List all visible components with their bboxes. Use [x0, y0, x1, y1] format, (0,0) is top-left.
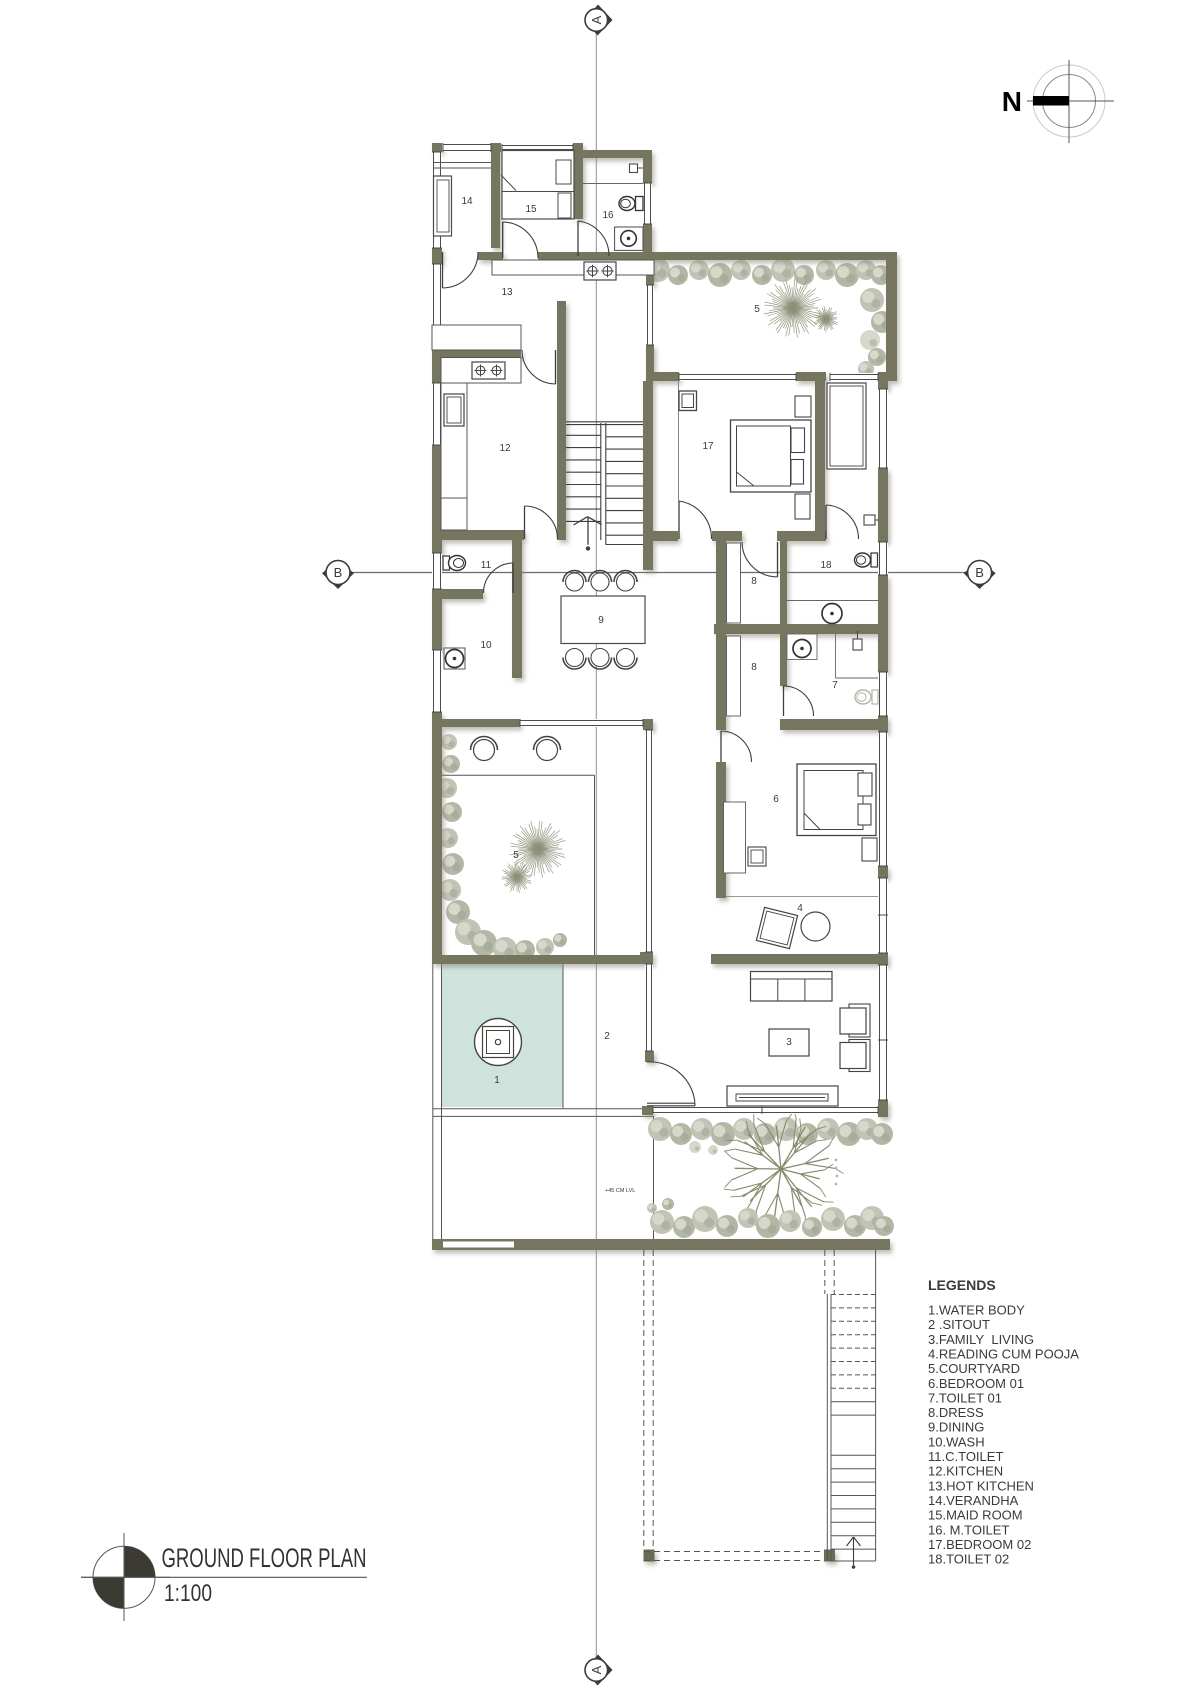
svg-text:8: 8 [751, 662, 757, 673]
svg-text:16: 16 [602, 210, 614, 221]
svg-text:B: B [334, 565, 343, 580]
svg-text:18.TOILET 02: 18.TOILET 02 [928, 1552, 1009, 1567]
svg-text:10.WASH: 10.WASH [928, 1434, 985, 1449]
svg-text:A: A [589, 15, 604, 24]
svg-text:12.KITCHEN: 12.KITCHEN [928, 1464, 1003, 1479]
svg-text:2 .SITOUT: 2 .SITOUT [928, 1317, 990, 1332]
svg-text:B: B [975, 565, 984, 580]
svg-text:1: 1 [494, 1075, 500, 1086]
svg-text:A: A [589, 1665, 604, 1674]
svg-text:16. M.TOILET: 16. M.TOILET [928, 1522, 1009, 1537]
svg-text:11.C.TOILET: 11.C.TOILET [928, 1449, 1003, 1464]
svg-text:+45 CM LVL: +45 CM LVL [605, 1188, 635, 1194]
svg-text:10: 10 [480, 640, 492, 651]
svg-text:5: 5 [754, 304, 760, 315]
svg-text:14: 14 [461, 196, 473, 207]
svg-text:7.TOILET 01: 7.TOILET 01 [928, 1390, 1002, 1405]
svg-text:N: N [1002, 86, 1022, 117]
svg-text:11: 11 [481, 560, 492, 571]
svg-text:4.READING CUM POOJA: 4.READING CUM POOJA [928, 1346, 1079, 1361]
svg-text:5.COURTYARD: 5.COURTYARD [928, 1361, 1020, 1376]
svg-text:1.WATER BODY: 1.WATER BODY [928, 1303, 1025, 1318]
svg-text:8.DRESS: 8.DRESS [928, 1405, 984, 1420]
svg-text:6: 6 [773, 794, 779, 805]
svg-text:9: 9 [598, 615, 604, 626]
svg-text:7: 7 [832, 680, 838, 691]
svg-text:15.MAID ROOM: 15.MAID ROOM [928, 1508, 1023, 1523]
svg-text:GROUND FLOOR PLAN: GROUND FLOOR PLAN [162, 1543, 367, 1573]
svg-text:14.VERANDHA: 14.VERANDHA [928, 1493, 1019, 1508]
svg-text:8: 8 [751, 576, 757, 587]
svg-text:6.BEDROOM 01: 6.BEDROOM 01 [928, 1376, 1024, 1391]
svg-text:13: 13 [501, 287, 513, 298]
svg-text:18: 18 [820, 560, 832, 571]
svg-text:17: 17 [702, 441, 714, 452]
svg-text:15: 15 [525, 204, 537, 215]
svg-text:12: 12 [499, 443, 511, 454]
svg-text:3.FAMILY LIVING: 3.FAMILY LIVING [928, 1332, 1034, 1347]
svg-text:17.BEDROOM 02: 17.BEDROOM 02 [928, 1537, 1031, 1552]
svg-text:4: 4 [797, 903, 803, 914]
svg-text:9.DINING: 9.DINING [928, 1420, 984, 1435]
svg-text:LEGENDS: LEGENDS [928, 1277, 996, 1293]
svg-text:1:100: 1:100 [164, 1580, 212, 1607]
svg-text:5: 5 [513, 850, 519, 861]
svg-text:2: 2 [604, 1031, 610, 1042]
svg-text:13.HOT KITCHEN: 13.HOT KITCHEN [928, 1478, 1034, 1493]
svg-text:3: 3 [786, 1037, 792, 1048]
